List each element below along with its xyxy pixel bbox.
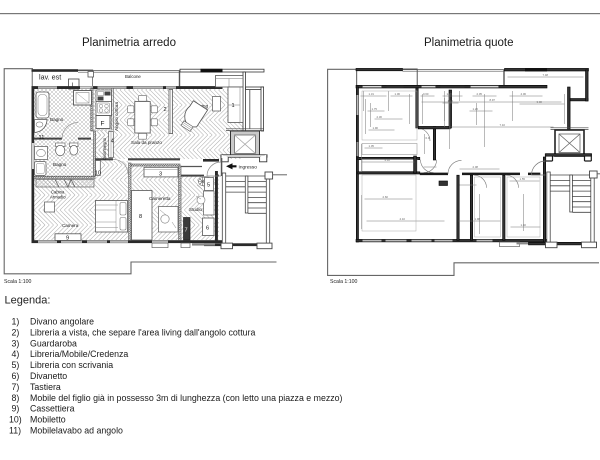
svg-text:7): 7): [12, 382, 20, 392]
svg-text:4.10: 4.10: [400, 217, 406, 221]
svg-text:Bagno: Bagno: [50, 117, 64, 122]
svg-text:2.60: 2.60: [383, 195, 389, 199]
svg-text:4: 4: [111, 139, 114, 145]
svg-text:1): 1): [12, 317, 20, 327]
svg-text:1.98: 1.98: [475, 217, 481, 221]
svg-text:7: 7: [185, 228, 188, 234]
svg-text:Armadio: Armadio: [50, 195, 66, 200]
svg-text:11): 11): [9, 426, 21, 436]
svg-text:2): 2): [12, 327, 20, 337]
svg-text:1.30: 1.30: [447, 92, 453, 96]
svg-text:4.10: 4.10: [385, 158, 391, 162]
svg-text:1.75: 1.75: [372, 107, 378, 111]
svg-text:2.08: 2.08: [473, 165, 479, 169]
svg-text:Cassettiera: Cassettiera: [30, 404, 75, 414]
svg-text:Libreria/Mobile/Credenza: Libreria/Mobile/Credenza: [30, 349, 128, 359]
svg-text:Disimpegno: Disimpegno: [102, 137, 107, 160]
svg-text:Scala 1:100: Scala 1:100: [330, 279, 358, 285]
svg-text:7.48: 7.48: [543, 73, 549, 77]
svg-text:Bagno: Bagno: [53, 162, 67, 167]
svg-text:1.05: 1.05: [369, 144, 375, 148]
svg-text:Divano angolare: Divano angolare: [30, 317, 94, 327]
svg-text:5): 5): [12, 360, 20, 370]
svg-text:4): 4): [12, 349, 20, 359]
svg-text:4.06: 4.06: [521, 92, 527, 96]
svg-text:8.97: 8.97: [490, 98, 496, 102]
svg-text:Camera: Camera: [62, 223, 79, 228]
svg-text:10: 10: [95, 171, 101, 177]
svg-text:lav. est: lav. est: [39, 73, 61, 82]
svg-text:Angolo cottura: Angolo cottura: [114, 101, 119, 131]
svg-text:1.31: 1.31: [369, 92, 375, 96]
svg-text:Planimetria quote: Planimetria quote: [424, 37, 514, 49]
svg-text:1.40: 1.40: [521, 223, 527, 227]
svg-text:9: 9: [66, 236, 69, 242]
svg-text:1.10: 1.10: [448, 99, 454, 103]
svg-text:3: 3: [159, 172, 162, 178]
svg-text:Studio: Studio: [189, 207, 202, 212]
svg-text:1: 1: [232, 103, 235, 109]
svg-text:1.26: 1.26: [473, 107, 479, 111]
svg-text:2.30: 2.30: [377, 115, 383, 119]
svg-text:2.05: 2.05: [477, 92, 483, 96]
svg-text:Mobiletto: Mobiletto: [30, 415, 66, 425]
svg-text:1.06: 1.06: [395, 92, 401, 96]
svg-text:9): 9): [12, 404, 20, 414]
svg-text:Divanetto: Divanetto: [30, 371, 67, 381]
svg-text:7.10: 7.10: [500, 123, 506, 127]
svg-text:11: 11: [39, 135, 45, 141]
svg-text:Sala da pranzo: Sala da pranzo: [131, 140, 162, 145]
svg-text:6: 6: [206, 226, 209, 232]
svg-text:Tastiera: Tastiera: [30, 382, 61, 392]
svg-text:0.60: 0.60: [423, 92, 429, 96]
svg-text:Mobile del figlio già in posse: Mobile del figlio già in possesso 3m di …: [30, 393, 343, 403]
svg-text:2: 2: [164, 107, 167, 113]
svg-text:Ingresso: Ingresso: [239, 165, 258, 171]
svg-text:Planimetria arredo: Planimetria arredo: [82, 37, 176, 49]
svg-text:Guardaroba: Guardaroba: [30, 338, 77, 348]
svg-text:1.55: 1.55: [520, 177, 526, 181]
svg-text:8: 8: [139, 214, 142, 220]
svg-text:Libreria con scrivania: Libreria con scrivania: [30, 360, 113, 370]
svg-text:0.9: 0.9: [426, 136, 430, 140]
svg-text:Libreria a vista, che separe l: Libreria a vista, che separe l'area livi…: [30, 327, 255, 337]
svg-text:Cameretta: Cameretta: [149, 196, 171, 201]
svg-text:Legenda:: Legenda:: [5, 295, 51, 307]
svg-text:Mobilelavabo ad angolo: Mobilelavabo ad angolo: [30, 426, 123, 436]
svg-text:8): 8): [12, 393, 20, 403]
svg-text:Scala 1:100: Scala 1:100: [4, 279, 32, 285]
svg-text:3): 3): [12, 338, 20, 348]
svg-text:Balcone: Balcone: [125, 74, 141, 79]
svg-text:5: 5: [207, 183, 210, 189]
svg-text:F: F: [101, 121, 105, 128]
svg-text:3.00: 3.00: [537, 100, 543, 104]
svg-text:6): 6): [12, 371, 20, 381]
svg-text:10): 10): [9, 415, 22, 425]
svg-text:1.90: 1.90: [373, 126, 379, 130]
